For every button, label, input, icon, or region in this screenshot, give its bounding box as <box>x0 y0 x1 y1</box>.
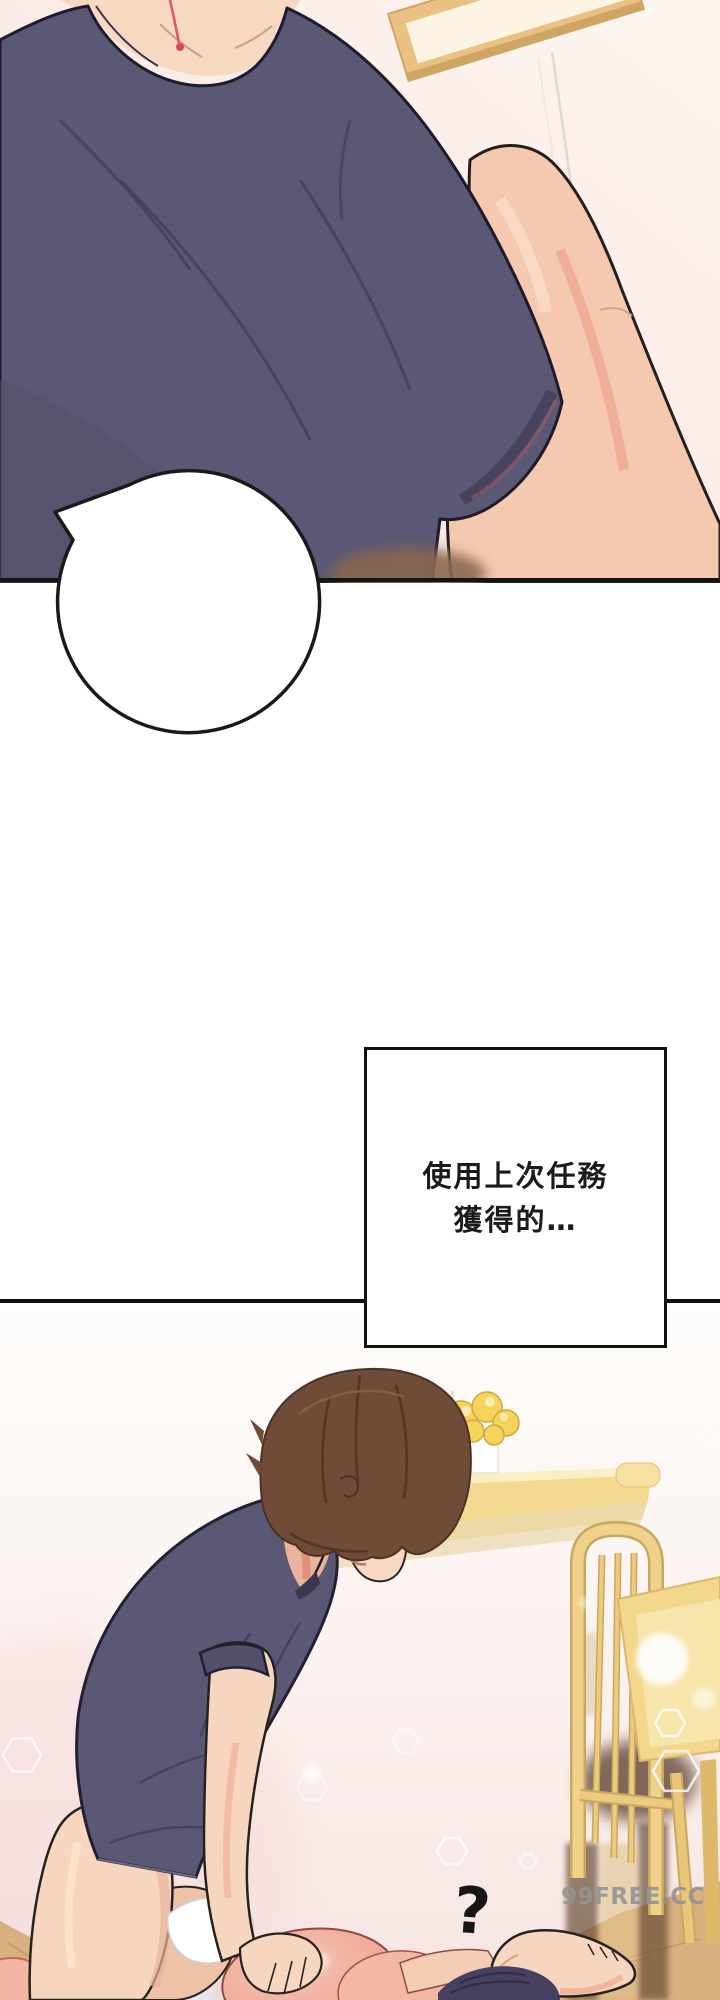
boy-hair <box>261 1369 471 1560</box>
bokeh-light <box>693 1688 715 1710</box>
narration-line-2: 獲得的… <box>453 1198 577 1242</box>
question-mark: ? <box>434 1868 510 1957</box>
bokeh-light <box>636 1633 688 1685</box>
site-watermark: 99FREE.CC <box>555 1884 705 1910</box>
speech-bubble-shape <box>55 471 320 733</box>
chest-mole <box>176 43 184 51</box>
speech-bubble <box>30 440 350 760</box>
comic-page: 什麼獎勵…? 使用上次任務 獲得的… <box>0 0 720 2000</box>
boy-hand <box>240 1933 322 1993</box>
narration-box: 使用上次任務 獲得的… <box>364 1047 667 1348</box>
narration-line-1: 使用上次任務 <box>422 1154 608 1198</box>
